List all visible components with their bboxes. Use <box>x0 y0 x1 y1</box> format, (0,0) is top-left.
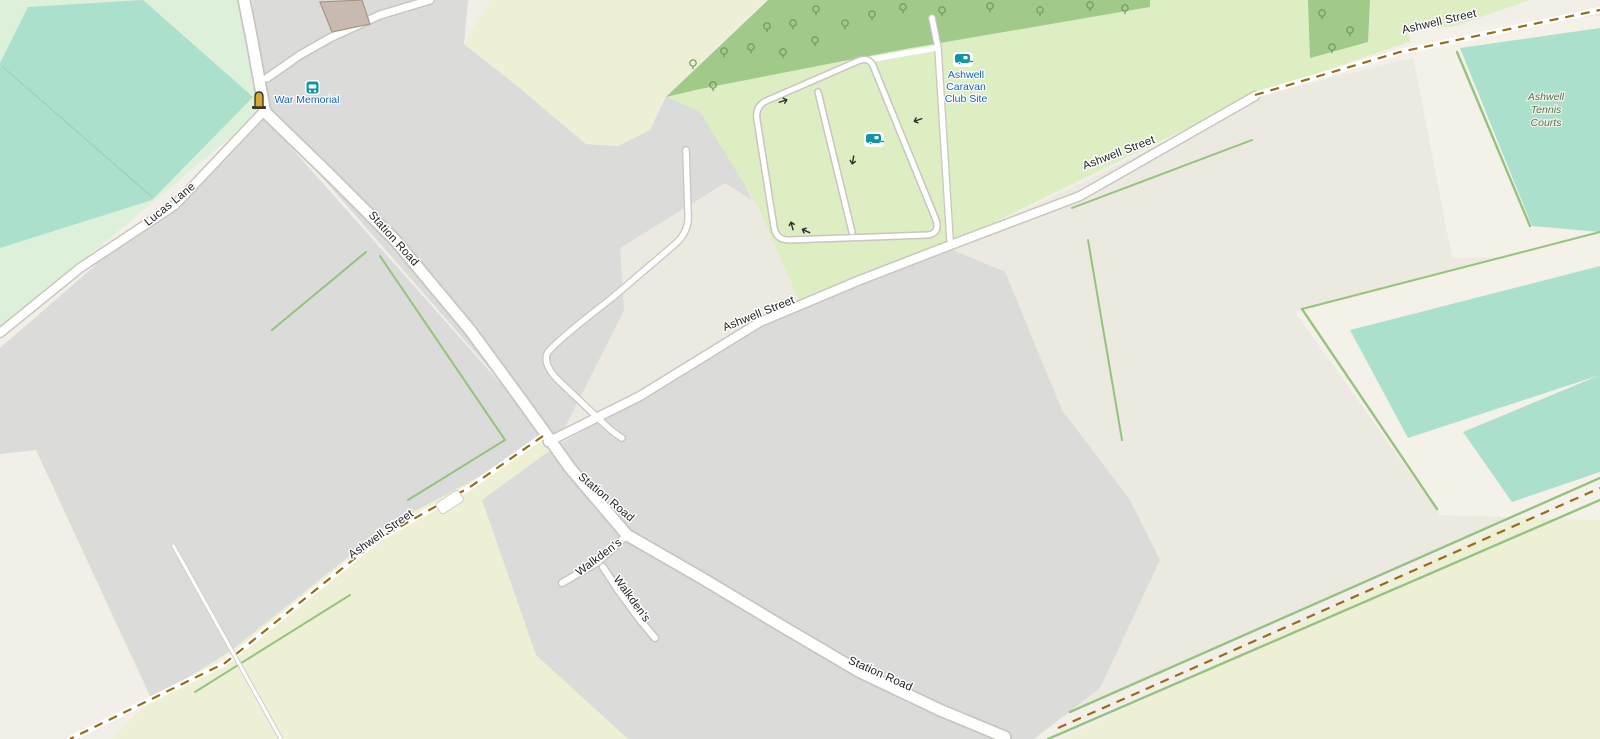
terrain-areas <box>0 0 1600 739</box>
poi-label-caravan-line2: Caravan <box>946 81 986 93</box>
poi-label-tennis-line1: Ashwell <box>1527 91 1565 103</box>
poi-label-tennis-line2: Tennis <box>1531 104 1562 116</box>
poi-label-caravan-line3: Club Site <box>945 93 988 105</box>
memorial-stone <box>255 92 263 107</box>
caravan-icon-1[interactable] <box>864 132 884 147</box>
bus-stop-icon[interactable] <box>305 80 320 95</box>
map-canvas[interactable]: Lucas Lane Station Road Station Road Sta… <box>0 0 1600 739</box>
caravan-icon-2[interactable] <box>953 52 973 67</box>
poi-label-tennis-line3: Courts <box>1531 117 1563 129</box>
bus-windshield <box>309 85 317 89</box>
poi-label-caravan-line1: Ashwell <box>948 69 984 81</box>
poi-label-war-memorial: War Memorial <box>275 94 340 106</box>
